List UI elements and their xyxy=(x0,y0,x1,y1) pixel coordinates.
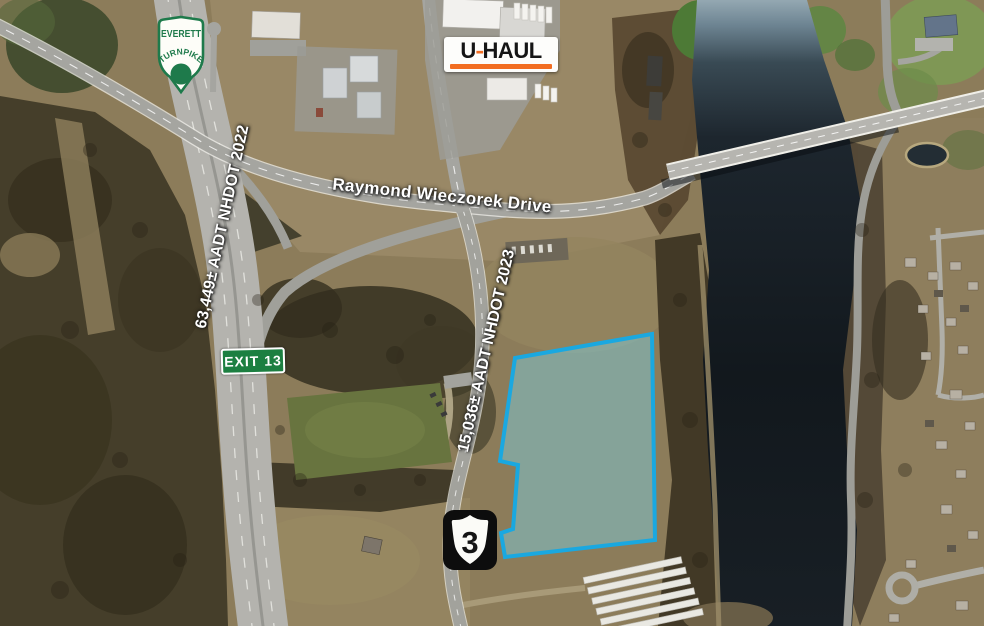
route-number: 3 xyxy=(461,525,478,560)
uhaul-logo: U-HAUL xyxy=(444,37,558,72)
uhaul-dash: - xyxy=(475,40,483,62)
shield-circle-icon xyxy=(171,64,192,85)
aerial-map: EVERETT TURNPIKE U-HAUL Raymond Wieczore… xyxy=(0,0,984,626)
highlighted-parcel[interactable] xyxy=(500,334,655,557)
everett-turnpike-shield: EVERETT TURNPIKE xyxy=(154,15,208,95)
uhaul-wordmark: U-HAUL xyxy=(460,40,541,62)
us-route-3-shield: 3 xyxy=(441,506,499,574)
exit-13-sign: EXIT 13 xyxy=(221,347,286,375)
driveway xyxy=(213,34,214,92)
shield-top-text: EVERETT xyxy=(161,28,201,40)
pond xyxy=(906,143,948,167)
uhaul-letter-u: U xyxy=(460,40,475,62)
uhaul-letters-haul: HAUL xyxy=(483,40,542,62)
uhaul-underline xyxy=(450,64,552,69)
